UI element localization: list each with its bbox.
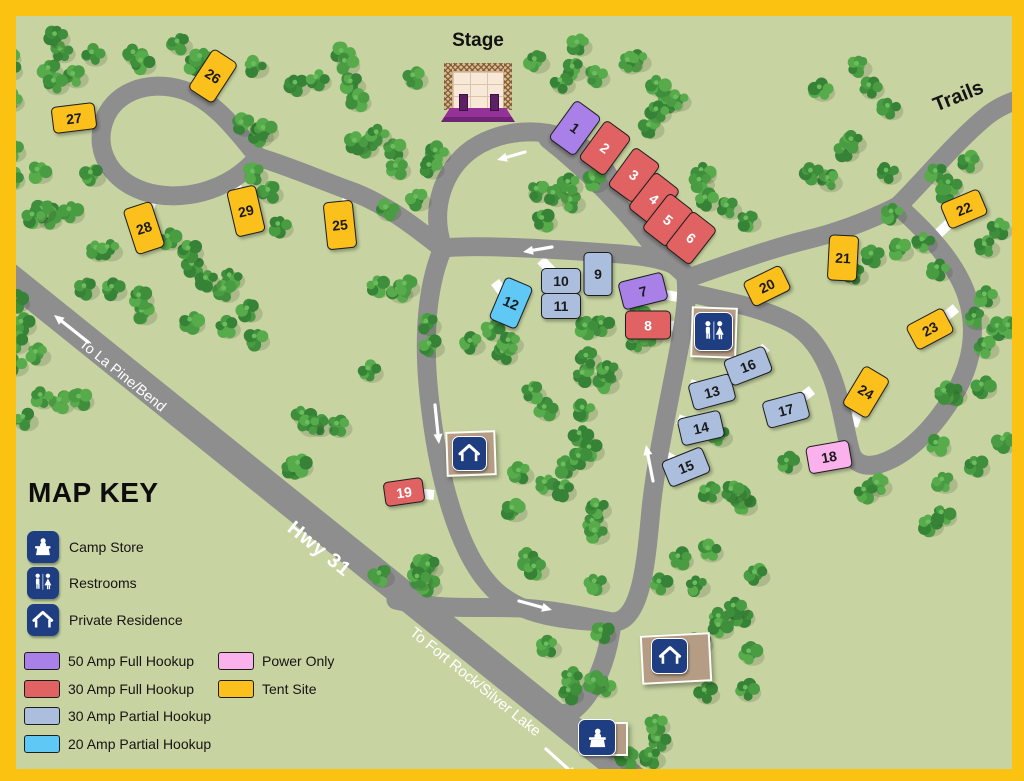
tree — [536, 635, 562, 659]
tree — [13, 408, 39, 432]
tree — [569, 447, 594, 470]
road — [101, 86, 258, 196]
map-key-facility-label: Camp Store — [69, 539, 144, 555]
tree — [552, 479, 577, 502]
site-marker-21: 21 — [827, 234, 859, 282]
restrooms-icon — [694, 312, 733, 351]
tree — [521, 381, 547, 404]
tree — [179, 311, 205, 335]
tree — [358, 359, 384, 383]
tree — [744, 563, 771, 587]
tree — [964, 456, 990, 478]
direction-arrow-head — [497, 153, 508, 162]
tree — [102, 277, 127, 301]
tree — [590, 622, 616, 644]
stage-lattice-beam — [444, 63, 512, 71]
tree — [974, 285, 1000, 309]
legend-label-50-amp-full: 50 Amp Full Hookup — [68, 653, 194, 669]
tree — [396, 274, 421, 298]
tree — [808, 78, 835, 102]
tree — [693, 682, 720, 705]
road — [688, 206, 898, 278]
tree — [669, 546, 694, 570]
site-marker-10: 10 — [541, 268, 581, 294]
tree — [777, 451, 802, 475]
legend-swatch-30-amp-partial — [24, 707, 60, 725]
site-marker-8: 8 — [625, 311, 671, 340]
tree — [166, 33, 193, 56]
tree — [957, 150, 983, 175]
tree — [386, 157, 411, 180]
stage-speaker-icon — [459, 94, 468, 111]
tree — [501, 498, 528, 522]
tree — [402, 66, 428, 90]
legend-swatch-tent — [218, 680, 254, 698]
tree — [848, 56, 873, 79]
frame-border-left — [0, 0, 16, 781]
tree — [244, 329, 270, 352]
restrooms-icon — [27, 567, 59, 599]
tree — [254, 118, 279, 142]
stage-speaker-icon — [490, 94, 499, 111]
legend-swatch-power-only — [218, 652, 254, 670]
roads — [0, 86, 1024, 781]
tree — [405, 189, 432, 212]
tree — [195, 270, 222, 293]
private-residence-icon — [27, 604, 59, 636]
tree — [698, 481, 724, 504]
legend-label-power-only: Power Only — [262, 653, 334, 669]
tree — [235, 299, 262, 323]
tree — [970, 375, 997, 399]
tree — [931, 505, 957, 527]
tree — [799, 162, 827, 185]
tree — [573, 398, 598, 422]
tree — [459, 331, 486, 355]
tree — [43, 72, 70, 95]
tree — [645, 714, 671, 736]
campground-map: Stage Trails To La Pine/Bend Hwy 31 To F… — [0, 0, 1024, 781]
tree — [567, 34, 593, 57]
tree — [876, 98, 903, 121]
stage-lattice-column — [444, 63, 452, 110]
tree — [650, 572, 675, 596]
tree — [861, 244, 887, 268]
map-key-facility-label: Restrooms — [69, 575, 137, 591]
tree — [877, 162, 902, 185]
tree — [859, 76, 884, 99]
site-marker-27: 27 — [51, 102, 98, 134]
private-residence-icon — [651, 638, 688, 674]
tree — [31, 386, 56, 409]
tree — [129, 285, 155, 309]
tree — [698, 539, 724, 563]
tree — [245, 55, 270, 79]
tree — [29, 161, 53, 184]
tree — [532, 209, 558, 233]
road — [0, 260, 652, 781]
tree — [523, 50, 550, 74]
tree — [558, 682, 584, 705]
tree — [215, 315, 240, 339]
frame-border-top — [0, 0, 1024, 16]
camp-store-icon — [578, 719, 616, 756]
map-key-facility-label: Private Residence — [69, 612, 183, 628]
tree — [584, 574, 611, 596]
tree — [735, 678, 761, 702]
tree — [717, 197, 743, 220]
frame-border-bottom — [0, 769, 1024, 781]
private-residence-icon — [452, 436, 487, 471]
stage-label: Stage — [444, 30, 512, 52]
tree — [418, 313, 442, 336]
tree — [376, 198, 401, 221]
stage-structure — [444, 63, 512, 123]
tree — [931, 472, 958, 494]
tree — [721, 480, 746, 503]
tree — [74, 277, 100, 300]
tree — [507, 461, 534, 485]
legend-swatch-50-amp-full — [24, 652, 60, 670]
tree — [575, 346, 602, 370]
tree — [738, 641, 764, 666]
tree — [686, 575, 711, 597]
tree — [645, 75, 672, 98]
camp-store-icon — [27, 531, 59, 563]
tree — [232, 112, 257, 137]
tree — [585, 65, 610, 88]
tree — [97, 239, 124, 262]
legend-label-20-amp-partial: 20 Amp Partial Hookup — [68, 736, 211, 752]
site-marker-25: 25 — [323, 200, 358, 251]
legend-swatch-20-amp-partial — [24, 735, 60, 753]
tree — [43, 26, 70, 49]
legend-swatch-30-amp-full — [24, 680, 60, 698]
tree — [926, 434, 951, 457]
frame-border-right — [1012, 0, 1024, 781]
stage-lattice-column — [504, 63, 512, 110]
legend-label-30-amp-partial: 30 Amp Partial Hookup — [68, 708, 211, 724]
stage-apron — [441, 108, 515, 122]
tree — [81, 43, 107, 67]
site-marker-11: 11 — [541, 293, 581, 319]
legend-label-30-amp-full: 30 Amp Full Hookup — [68, 681, 194, 697]
legend-label-tent: Tent Site — [262, 681, 316, 697]
map-key-title: MAP KEY — [28, 477, 159, 509]
tree — [889, 238, 914, 262]
site-marker-9: 9 — [584, 252, 613, 296]
tree — [269, 216, 294, 239]
